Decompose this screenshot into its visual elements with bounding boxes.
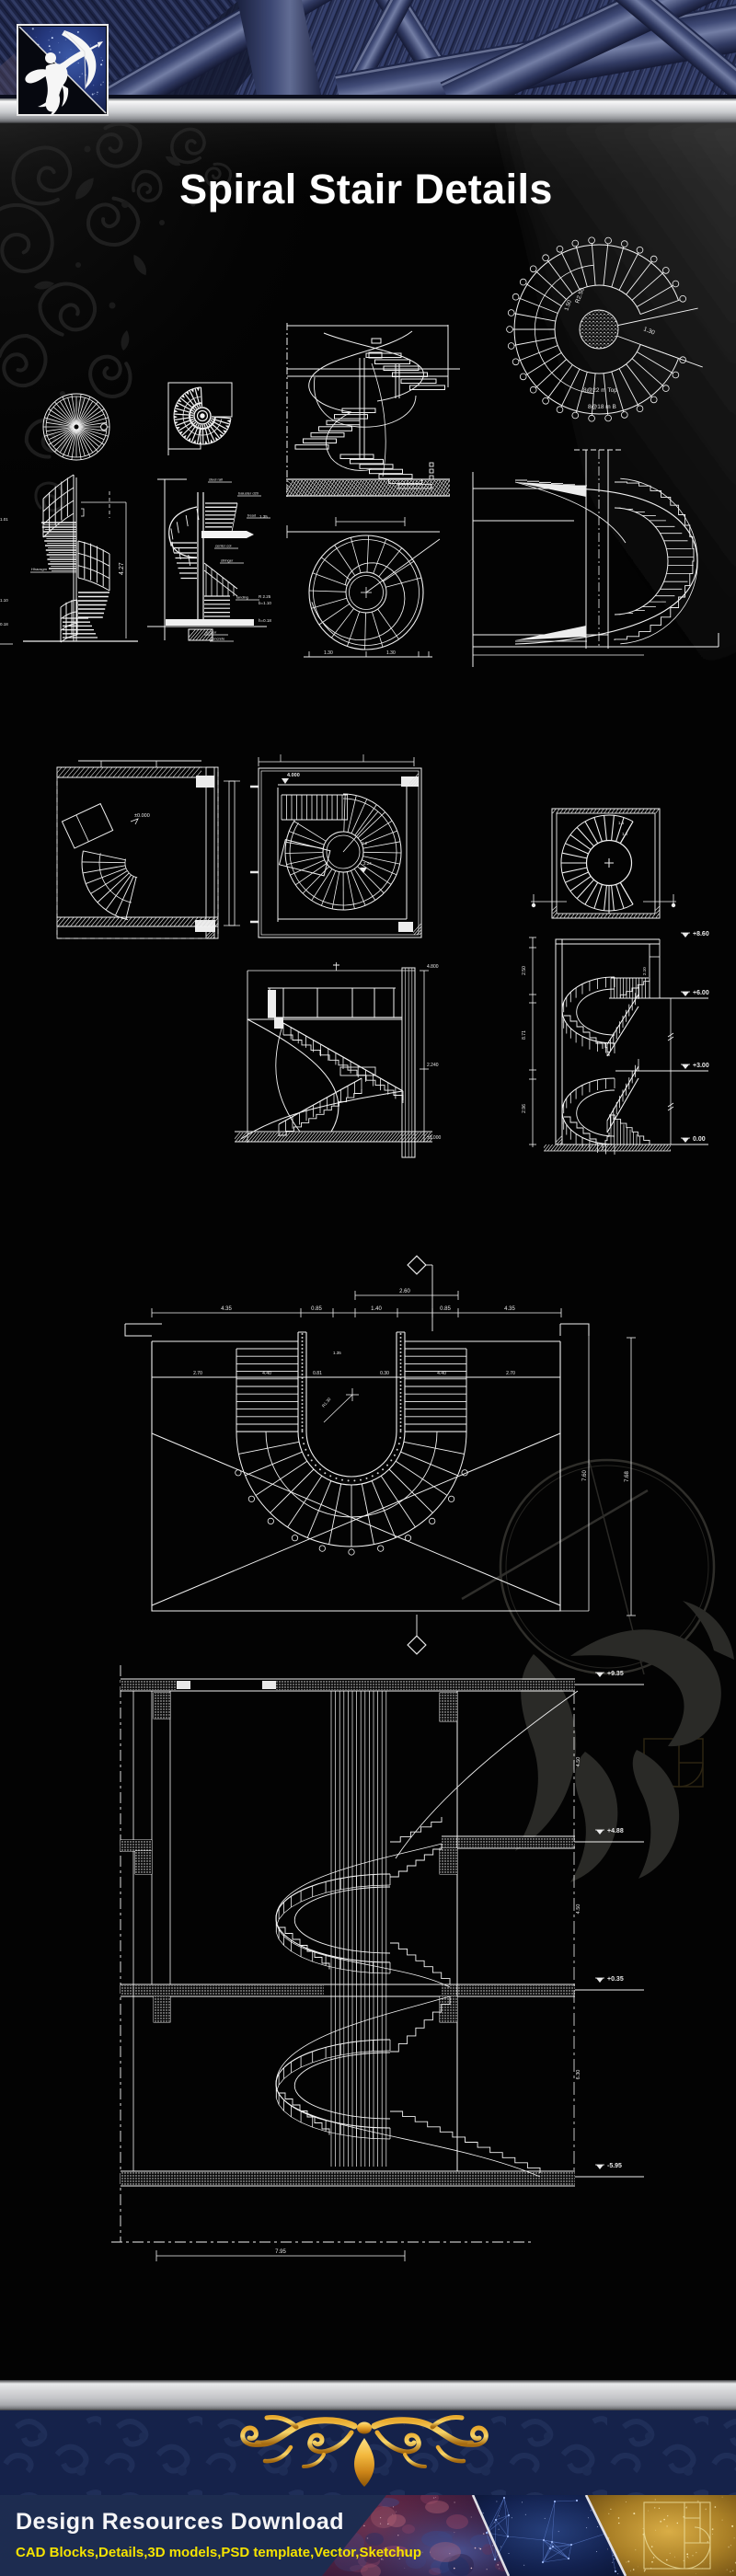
svg-text:1.0: 1.0 xyxy=(622,832,628,836)
svg-text:baluster d20: baluster d20 xyxy=(238,491,259,496)
svg-text:+6.00: +6.00 xyxy=(693,990,709,996)
svg-text:3.2: 3.2 xyxy=(362,841,368,845)
svg-text:0.85: 0.85 xyxy=(440,1306,451,1312)
svg-text:+4.88: +4.88 xyxy=(607,1828,624,1834)
svg-text:0.30: 0.30 xyxy=(380,1371,389,1376)
svg-text:7.68: 7.68 xyxy=(625,1471,630,1482)
svg-text:1.01: 1.01 xyxy=(0,517,8,522)
svg-text:0.00: 0.00 xyxy=(693,1136,706,1143)
svg-text:landing: landing xyxy=(236,595,248,600)
svg-text:+8.60: +8.60 xyxy=(693,931,709,937)
svg-text:2.70: 2.70 xyxy=(193,1371,202,1376)
svg-text:4.50: 4.50 xyxy=(576,1757,581,1767)
svg-text:4.35: 4.35 xyxy=(504,1306,515,1312)
svg-text:+3.00: +3.00 xyxy=(693,1063,709,1069)
svg-text:4.50: 4.50 xyxy=(576,1904,581,1915)
svg-text:±0.000: ±0.000 xyxy=(134,813,150,819)
svg-text:2.60: 2.60 xyxy=(399,1289,410,1294)
svg-text:1.40: 1.40 xyxy=(371,1306,382,1312)
svg-text:anchor: anchor xyxy=(205,630,217,635)
svg-text:1.5: 1.5 xyxy=(618,821,625,825)
svg-text:±0.000: ±0.000 xyxy=(427,1135,441,1141)
svg-text:h=0.18: h=0.18 xyxy=(259,618,271,623)
svg-text:1.10: 1.10 xyxy=(0,598,8,603)
svg-text:+0.35: +0.35 xyxy=(607,1976,624,1983)
svg-text:8@18 m B: 8@18 m B xyxy=(588,404,616,410)
svg-text:0.81: 0.81 xyxy=(313,1371,322,1376)
svg-text:4.800: 4.800 xyxy=(427,964,439,970)
svg-text:8@22 m Top: 8@22 m Top xyxy=(583,387,617,394)
svg-text:2.240: 2.240 xyxy=(427,1063,439,1068)
svg-text:8.71: 8.71 xyxy=(522,1030,527,1040)
svg-text:4.000: 4.000 xyxy=(287,773,300,778)
svg-text:0.85: 0.85 xyxy=(311,1306,322,1312)
svg-text:Spiral Stair Details: Spiral Stair Details xyxy=(179,166,553,213)
svg-text:2.24: 2.24 xyxy=(363,861,372,866)
svg-text:center col: center col xyxy=(215,544,231,548)
svg-text:7.60: 7.60 xyxy=(582,1470,588,1481)
svg-text:tread: tread xyxy=(247,513,256,518)
svg-text:6.30: 6.30 xyxy=(576,2070,581,2080)
svg-text:steel rail: steel rail xyxy=(209,477,223,482)
svg-text:1.35: 1.35 xyxy=(259,514,268,519)
svg-text:+9.35: +9.35 xyxy=(607,1671,624,1677)
svg-text:b=1.10: b=1.10 xyxy=(259,601,271,605)
svg-text:1.30: 1.30 xyxy=(386,650,396,656)
svg-text:1.30: 1.30 xyxy=(324,650,333,656)
svg-text:7.95: 7.95 xyxy=(275,2249,286,2255)
svg-text:4.35: 4.35 xyxy=(221,1306,232,1312)
svg-text:stringer: stringer xyxy=(221,558,234,563)
svg-text:2.50: 2.50 xyxy=(522,966,527,975)
svg-text:-5.95: -5.95 xyxy=(607,2163,622,2169)
svg-text:Hhacsgm: Hhacsgm xyxy=(31,567,48,571)
svg-text:2.10: 2.10 xyxy=(642,967,647,975)
svg-text:1.35: 1.35 xyxy=(333,1351,341,1355)
svg-text:concrete: concrete xyxy=(211,637,225,641)
svg-text:2.96: 2.96 xyxy=(522,1104,527,1113)
svg-text:0.18: 0.18 xyxy=(0,622,8,627)
svg-text:2.70: 2.70 xyxy=(506,1371,515,1376)
svg-text:R 2.25: R 2.25 xyxy=(259,594,271,599)
svg-text:4.27: 4.27 xyxy=(119,562,125,575)
